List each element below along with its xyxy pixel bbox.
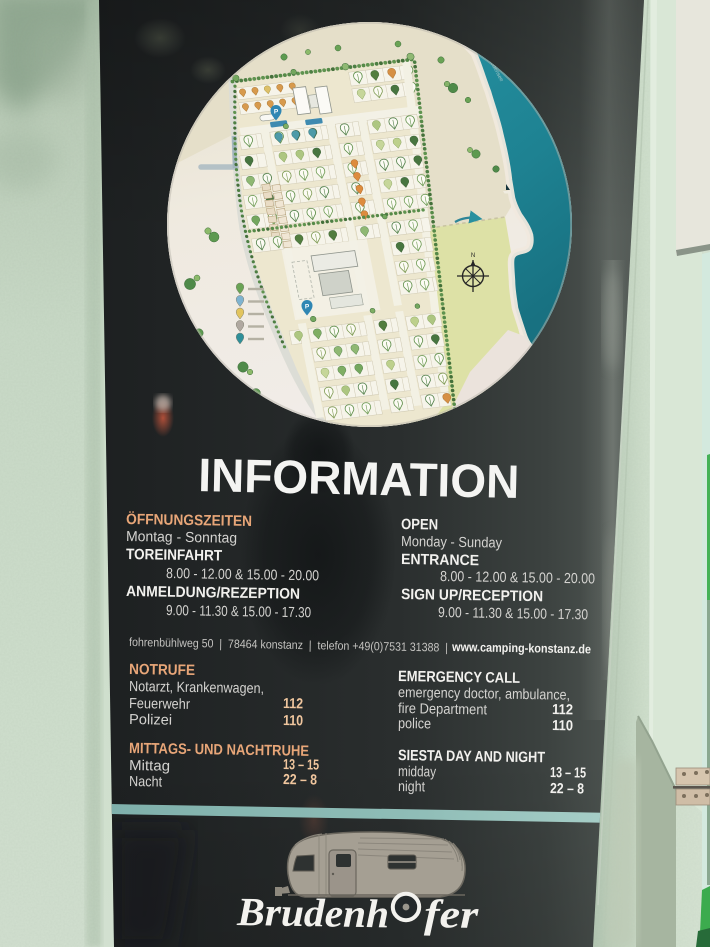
svg-text:SIGN UP/RECEPTION: SIGN UP/RECEPTION — [401, 586, 543, 605]
svg-text:Feuerwehr: Feuerwehr — [129, 696, 190, 713]
svg-text:110: 110 — [552, 718, 573, 734]
svg-text:P: P — [274, 109, 279, 116]
svg-text:Brudenh: Brudenh — [236, 889, 390, 936]
svg-text:P: P — [305, 304, 310, 311]
svg-text:9.00 - 11.30 & 15.00 - 17.30: 9.00 - 11.30 & 15.00 - 17.30 — [438, 605, 588, 623]
svg-text:112: 112 — [283, 696, 303, 712]
svg-text:8.00 - 12.00 & 15.00 - 20.00: 8.00 - 12.00 & 15.00 - 20.00 — [166, 566, 319, 584]
svg-text:Polizei: Polizei — [129, 712, 172, 729]
svg-text:Montag - Sonntag: Montag - Sonntag — [126, 529, 237, 547]
svg-text:TOREINFAHRT: TOREINFAHRT — [126, 546, 222, 565]
svg-text:www.camping-konstanz.de: www.camping-konstanz.de — [451, 640, 591, 656]
svg-text:MITTAGS- UND NACHTRUHE: MITTAGS- UND NACHTRUHE — [129, 740, 309, 760]
svg-text:Mittag: Mittag — [129, 758, 170, 775]
svg-text:13 – 15: 13 – 15 — [283, 757, 319, 774]
svg-text:night: night — [398, 779, 425, 795]
svg-text:8.00 - 12.00 & 15.00 - 20.00: 8.00 - 12.00 & 15.00 - 20.00 — [440, 569, 595, 587]
svg-text:N: N — [471, 253, 475, 259]
svg-text:ENTRANCE: ENTRANCE — [401, 551, 479, 569]
svg-text:Notarzt, Krankenwagen,: Notarzt, Krankenwagen, — [129, 679, 264, 697]
svg-text:9.00 - 11.30 & 15.00 - 17.30: 9.00 - 11.30 & 15.00 - 17.30 — [166, 603, 311, 621]
svg-text:110: 110 — [283, 713, 303, 729]
svg-text:ÖFFNUNGSZEITEN: ÖFFNUNGSZEITEN — [126, 511, 252, 530]
svg-text:112: 112 — [552, 702, 573, 718]
svg-text:ANMELDUNG/REZEPTION: ANMELDUNG/REZEPTION — [126, 583, 300, 603]
svg-text:Monday - Sunday: Monday - Sunday — [401, 534, 503, 552]
svg-text:NOTRUFE: NOTRUFE — [129, 661, 195, 679]
svg-text:OPEN: OPEN — [401, 516, 438, 534]
svg-text:police: police — [398, 716, 431, 733]
svg-text:22 – 8: 22 – 8 — [550, 781, 584, 798]
svg-text:Nacht: Nacht — [129, 774, 162, 791]
svg-text:fer: fer — [424, 891, 479, 937]
svg-text:13 – 15: 13 – 15 — [550, 765, 586, 782]
svg-text:EMERGENCY CALL: EMERGENCY CALL — [398, 668, 520, 687]
svg-text:INFORMATION: INFORMATION — [198, 448, 520, 508]
svg-text:22 – 8: 22 – 8 — [283, 772, 317, 789]
